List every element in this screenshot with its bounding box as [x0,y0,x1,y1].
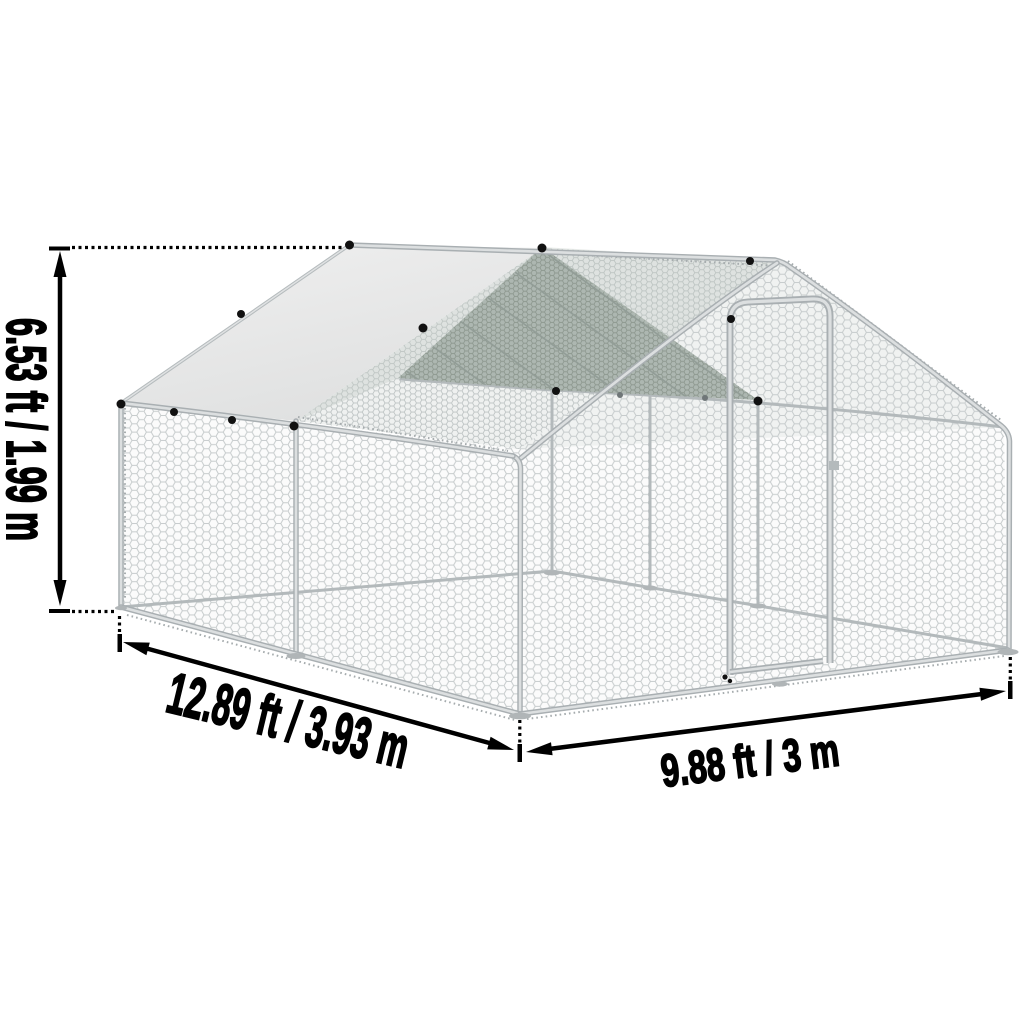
svg-text:6.53 ft / 1.99 m: 6.53 ft / 1.99 m [0,318,58,541]
